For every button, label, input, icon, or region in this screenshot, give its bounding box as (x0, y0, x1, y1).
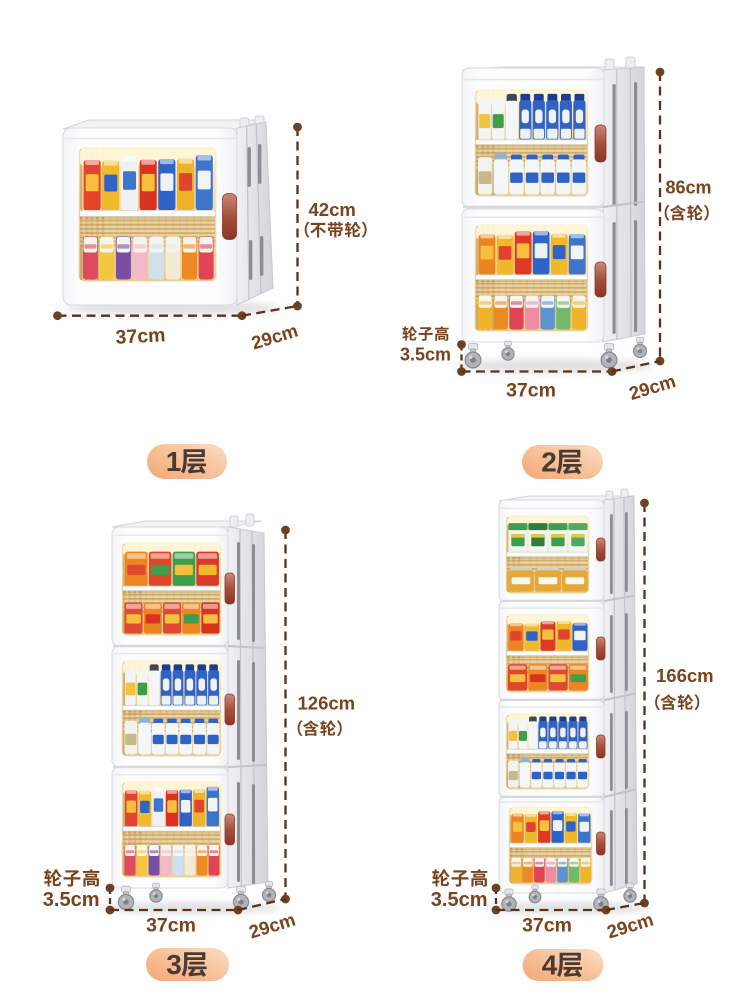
svg-text:37cm: 37cm (115, 324, 166, 349)
svg-text:1: 1 (166, 446, 182, 477)
svg-text:2: 2 (541, 447, 557, 478)
svg-text:86cm: 86cm (666, 178, 712, 198)
svg-text:42cm: 42cm (309, 199, 356, 220)
svg-text:166cm: 166cm (656, 665, 714, 686)
svg-text:3.5cm: 3.5cm (400, 345, 451, 365)
svg-text:4: 4 (542, 950, 558, 981)
svg-text:37cm: 37cm (522, 915, 572, 937)
svg-text:3.5cm: 3.5cm (43, 889, 100, 911)
svg-text:3.5cm: 3.5cm (431, 889, 488, 911)
svg-text:126cm: 126cm (298, 693, 356, 714)
svg-text:37cm: 37cm (146, 915, 196, 937)
svg-text:37cm: 37cm (506, 380, 556, 402)
svg-text:3: 3 (166, 949, 182, 980)
